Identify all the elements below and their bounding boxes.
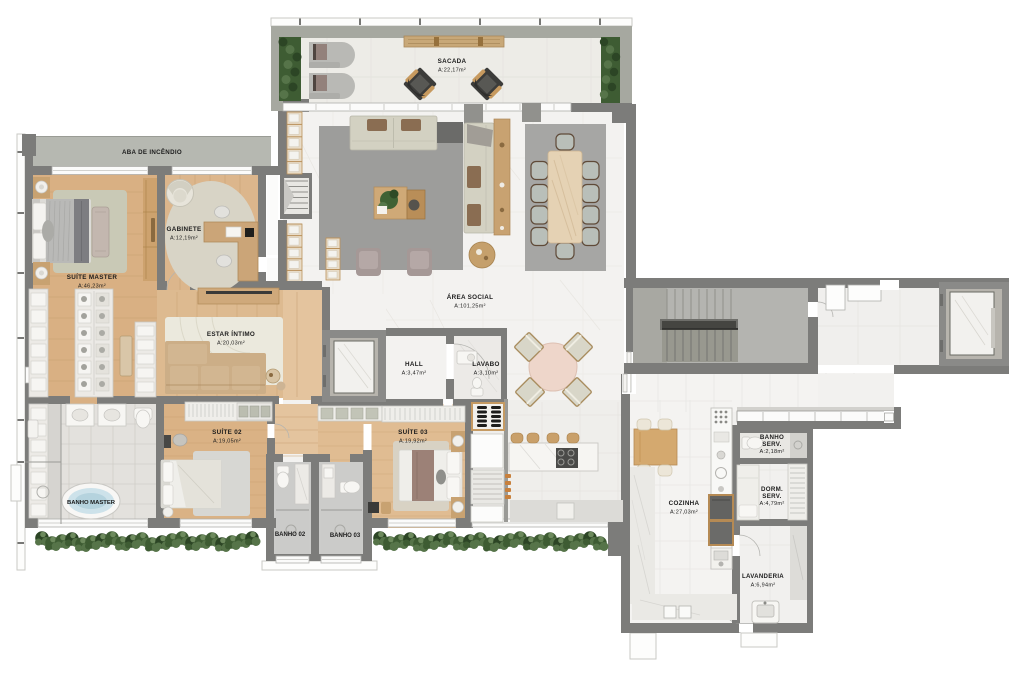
svg-text:A:12,19m²: A:12,19m²	[170, 236, 198, 242]
svg-text:A:3,10m²: A:3,10m²	[474, 371, 499, 377]
svg-text:BANHO 03: BANHO 03	[330, 533, 361, 539]
svg-text:A:2,18m²: A:2,18m²	[759, 449, 784, 455]
svg-text:A:4,79m²: A:4,79m²	[759, 501, 784, 507]
svg-text:SERV.: SERV.	[762, 441, 781, 448]
svg-text:A:20,03m²: A:20,03m²	[217, 341, 245, 347]
svg-text:SUÍTE 02: SUÍTE 02	[212, 427, 242, 436]
svg-text:SUÍTE 03: SUÍTE 03	[398, 427, 428, 436]
svg-text:A:6,94m²: A:6,94m²	[751, 583, 776, 589]
svg-text:SERV.: SERV.	[762, 493, 781, 500]
svg-text:BANHO MASTER: BANHO MASTER	[67, 500, 116, 506]
svg-text:COZINHA: COZINHA	[669, 500, 700, 507]
svg-text:A:101,25m²: A:101,25m²	[454, 304, 485, 310]
svg-text:DORM.: DORM.	[761, 486, 783, 493]
svg-text:ÁREA SOCIAL: ÁREA SOCIAL	[447, 292, 493, 301]
svg-text:A:27,03m²: A:27,03m²	[670, 510, 698, 516]
svg-text:SACADA: SACADA	[438, 58, 467, 65]
svg-text:SUÍTE MASTER: SUÍTE MASTER	[67, 272, 118, 281]
svg-text:A:22,17m²: A:22,17m²	[438, 68, 466, 74]
svg-text:LAVANDERIA: LAVANDERIA	[742, 573, 784, 580]
svg-text:A:19,05m²: A:19,05m²	[213, 439, 241, 445]
svg-text:HALL: HALL	[405, 361, 423, 368]
svg-text:LAVABO: LAVABO	[472, 361, 499, 368]
svg-text:A:3,47m²: A:3,47m²	[402, 371, 427, 377]
svg-text:BANHO: BANHO	[760, 434, 784, 441]
svg-text:BANHO 02: BANHO 02	[275, 532, 306, 538]
svg-text:A:19,92m²: A:19,92m²	[399, 439, 427, 445]
svg-text:A:46,23m²: A:46,23m²	[78, 284, 106, 290]
svg-text:ESTAR ÍNTIMO: ESTAR ÍNTIMO	[207, 329, 255, 338]
svg-text:GABINETE: GABINETE	[167, 226, 202, 233]
svg-text:ABA DE INCÊNDIO: ABA DE INCÊNDIO	[122, 148, 182, 156]
